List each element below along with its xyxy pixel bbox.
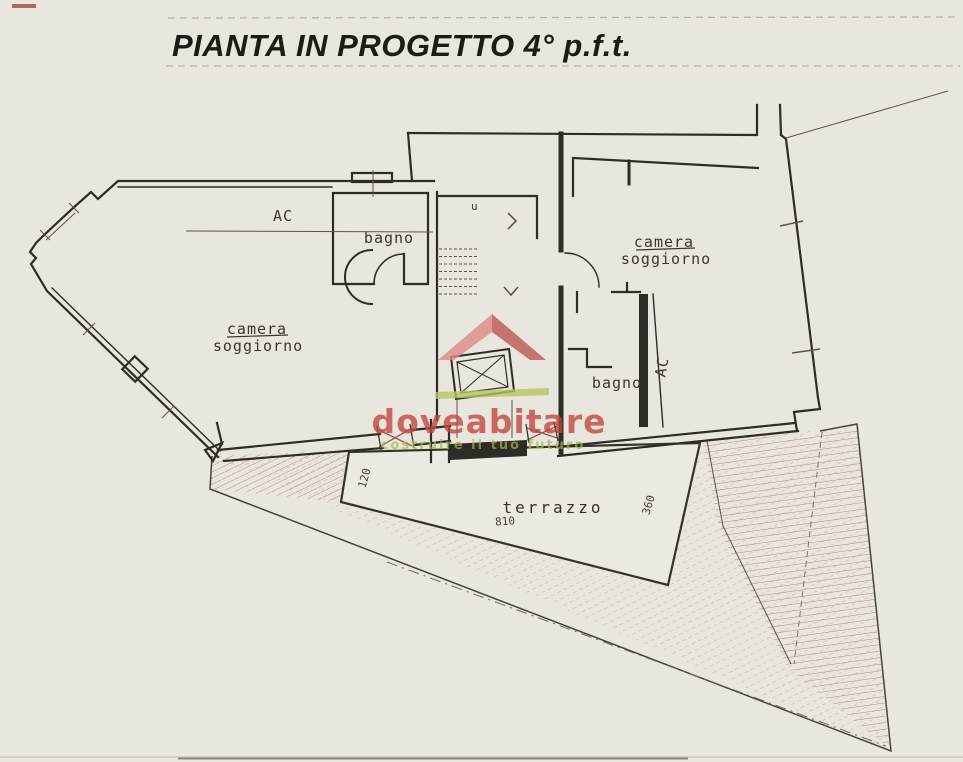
- scanned-floor-plan-page: PIANTA IN PROGETTO 4° p.f.t. terrazzo 81…: [0, 0, 963, 762]
- bagno-left-label: bagno: [364, 229, 414, 247]
- ac-left-label: AC: [273, 207, 293, 225]
- plan-title: PIANTA IN PROGETTO 4° p.f.t.: [172, 28, 632, 63]
- ac-duct-thick-wall: [639, 294, 648, 427]
- floor-plan-svg: PIANTA IN PROGETTO 4° p.f.t. terrazzo 81…: [0, 0, 963, 762]
- ac-right-label: AC: [651, 356, 672, 379]
- watermark-brand-text: doveabitare: [371, 402, 606, 441]
- camera-left-label-line2: soggiorno: [213, 337, 303, 355]
- dimension-810: 810: [495, 514, 516, 528]
- terrazzo-label: terrazzo: [502, 498, 603, 517]
- stair-u-note: u: [471, 200, 478, 213]
- watermark-tagline-text: costruire il tuo futuro: [381, 438, 586, 453]
- scan-artifact-red-mark: [12, 4, 36, 8]
- bagno-right-label: bagno: [592, 374, 642, 392]
- camera-right-label-line2: soggiorno: [621, 250, 711, 268]
